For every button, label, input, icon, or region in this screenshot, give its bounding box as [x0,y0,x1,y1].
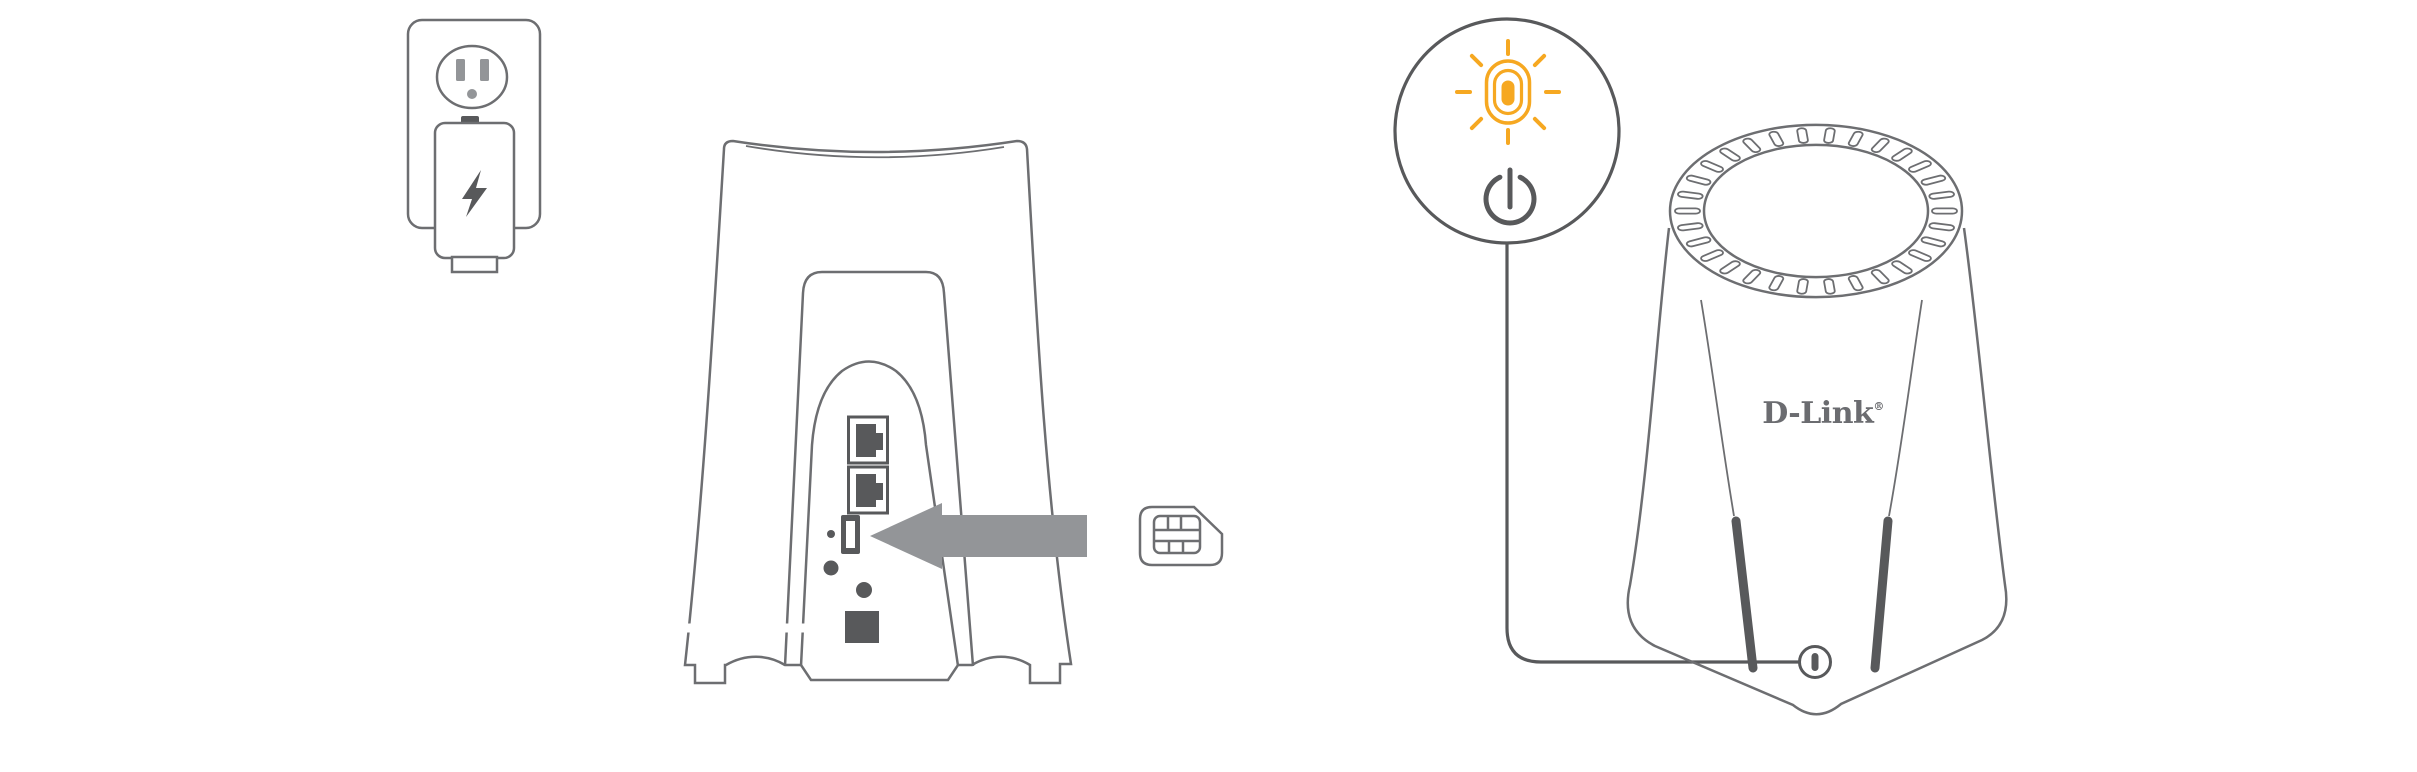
ethernet-port-2 [849,467,888,513]
wps-button [856,582,872,598]
outlet-slot-left [456,59,465,81]
illustration-canvas: D-Link® [0,0,2417,772]
power-cable [473,268,845,678]
antenna-groove-left [1701,300,1734,516]
router-front-view: D-Link® [1628,125,2007,714]
registered-mark: ® [1873,400,1884,413]
power-adapter [435,116,514,272]
adapter-cable-boot [452,257,497,272]
dlink-logo: D-Link® [1762,396,1884,431]
device-power-led [1800,647,1831,678]
ethernet-port-1 [849,417,888,463]
sim-eject-pinhole [827,530,835,538]
power-led-callout [1395,19,1619,243]
antenna-accent-right [1875,521,1888,668]
vent-ring [1670,125,1962,297]
setup-illustration: D-Link® [0,0,2417,772]
reset-button [824,561,839,576]
router-back-view [685,141,1071,683]
outlet-slot-right [480,59,489,81]
sim-card-slot [841,515,860,554]
insert-arrow-icon [870,503,1087,569]
router-back-body [685,141,1071,683]
dc-power-jack [845,611,879,643]
antenna-groove-right [1889,300,1922,516]
outlet-ground-hole [467,89,477,99]
sim-card-icon [1140,507,1222,565]
callout-leader-line [1507,243,1800,662]
dlink-logo-text: D-Link [1762,396,1875,431]
router-front-body [1628,228,2007,714]
antenna-accent-left [1736,521,1753,668]
